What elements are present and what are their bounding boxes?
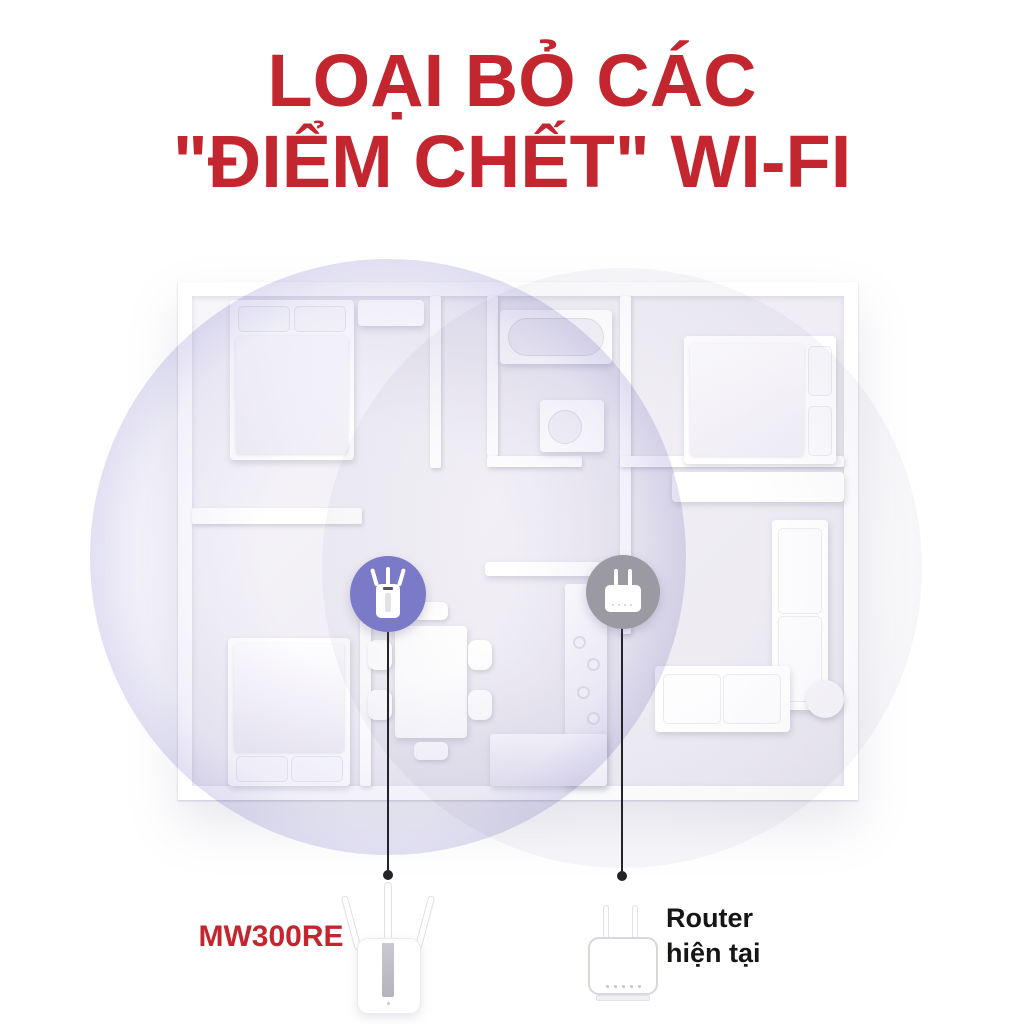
router-label-line-1: Router bbox=[666, 901, 761, 936]
router-antenna bbox=[632, 905, 638, 939]
connector-dot-extender bbox=[383, 870, 393, 880]
router-label-line-2: hiện tại bbox=[666, 936, 761, 971]
router-badge bbox=[586, 555, 660, 629]
router-product-image bbox=[588, 905, 663, 1005]
extender-antenna bbox=[384, 882, 392, 944]
connector-line-router bbox=[621, 628, 623, 873]
extender-body bbox=[357, 938, 421, 1014]
extender-badge bbox=[350, 556, 426, 632]
router-antenna bbox=[603, 905, 609, 939]
router-body bbox=[588, 937, 658, 995]
title-line-1: LOẠI BỎ CÁC bbox=[0, 40, 1024, 121]
router-label: Router hiện tại bbox=[666, 901, 761, 970]
marketing-banner: LOẠI BỎ CÁC "ĐIỂM CHẾT" WI-FI bbox=[0, 0, 1024, 1024]
connector-line-extender bbox=[387, 630, 389, 872]
title-line-2: "ĐIỂM CHẾT" WI-FI bbox=[0, 121, 1024, 202]
extender-model-label: MW300RE bbox=[186, 920, 356, 954]
page-title: LOẠI BỎ CÁC "ĐIỂM CHẾT" WI-FI bbox=[0, 40, 1024, 203]
connector-dot-router bbox=[617, 871, 627, 881]
